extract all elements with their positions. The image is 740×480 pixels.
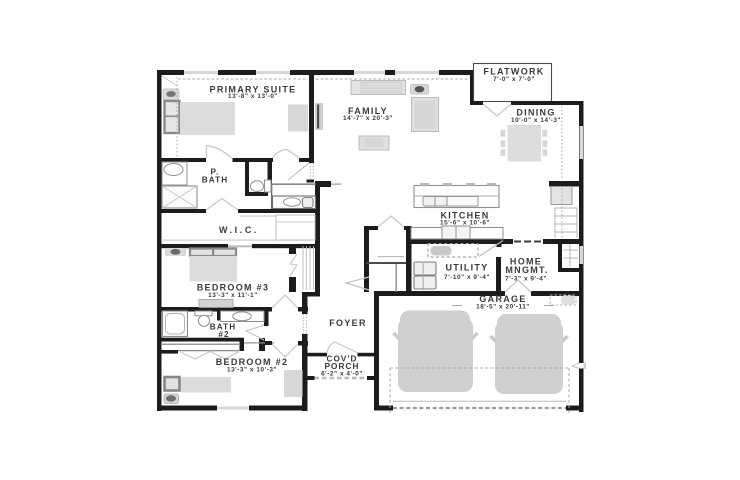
svg-text:BEDROOM #3: BEDROOM #3 (197, 283, 270, 293)
svg-text:#2: #2 (218, 330, 229, 339)
svg-text:FLATWORK: FLATWORK (483, 66, 544, 76)
svg-text:13'-8" x 13'-0": 13'-8" x 13'-0" (228, 93, 278, 100)
svg-text:BEDROOM #2: BEDROOM #2 (216, 357, 289, 367)
svg-text:GARAGE: GARAGE (479, 294, 526, 304)
svg-text:7'-0" x 7'-0": 7'-0" x 7'-0" (493, 76, 535, 83)
svg-text:18'-5" x 20'-11": 18'-5" x 20'-11" (476, 304, 530, 311)
svg-text:13'-3" x 11'-1": 13'-3" x 11'-1" (208, 292, 258, 299)
svg-text:BATH: BATH (202, 176, 229, 185)
svg-text:UTILITY: UTILITY (445, 263, 488, 273)
svg-text:DINING: DINING (516, 107, 555, 117)
svg-text:7'-10" x 9'-4": 7'-10" x 9'-4" (444, 274, 490, 281)
svg-text:6'-2" x 4'-0": 6'-2" x 4'-0" (321, 371, 363, 378)
svg-text:10'-0" x 14'-3": 10'-0" x 14'-3" (511, 117, 561, 124)
svg-text:15'-6" x 10'-6": 15'-6" x 10'-6" (440, 220, 490, 227)
svg-text:14'-7" x 20'-3": 14'-7" x 20'-3" (343, 115, 393, 122)
svg-text:13'-3" x 10'-3": 13'-3" x 10'-3" (227, 367, 277, 374)
svg-text:FOYER: FOYER (329, 318, 367, 328)
svg-text:W.I.C.: W.I.C. (219, 225, 259, 235)
svg-text:MNGMT.: MNGMT. (505, 265, 548, 275)
svg-text:7'-3" x 9'-4": 7'-3" x 9'-4" (505, 275, 547, 282)
